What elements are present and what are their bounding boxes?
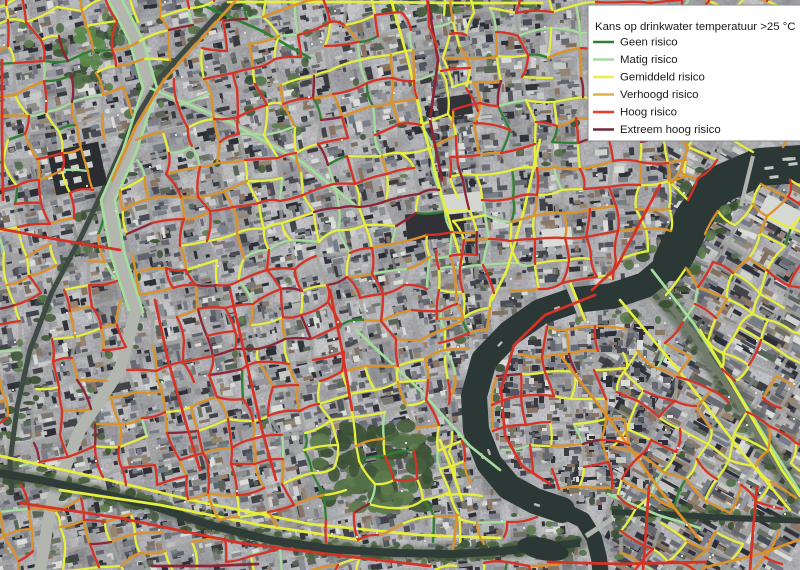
svg-text:Extreem hoog risico: Extreem hoog risico xyxy=(620,124,721,136)
svg-text:Gemiddeld risico: Gemiddeld risico xyxy=(620,72,705,84)
svg-text:Matig risico: Matig risico xyxy=(620,54,678,66)
svg-text:Kans op drinkwater temperatuur: Kans op drinkwater temperatuur >25 °C xyxy=(595,21,796,33)
svg-text:Hoog risico: Hoog risico xyxy=(620,107,677,119)
svg-text:Verhoogd risico: Verhoogd risico xyxy=(620,89,699,101)
svg-text:Geen risico: Geen risico xyxy=(620,37,678,49)
